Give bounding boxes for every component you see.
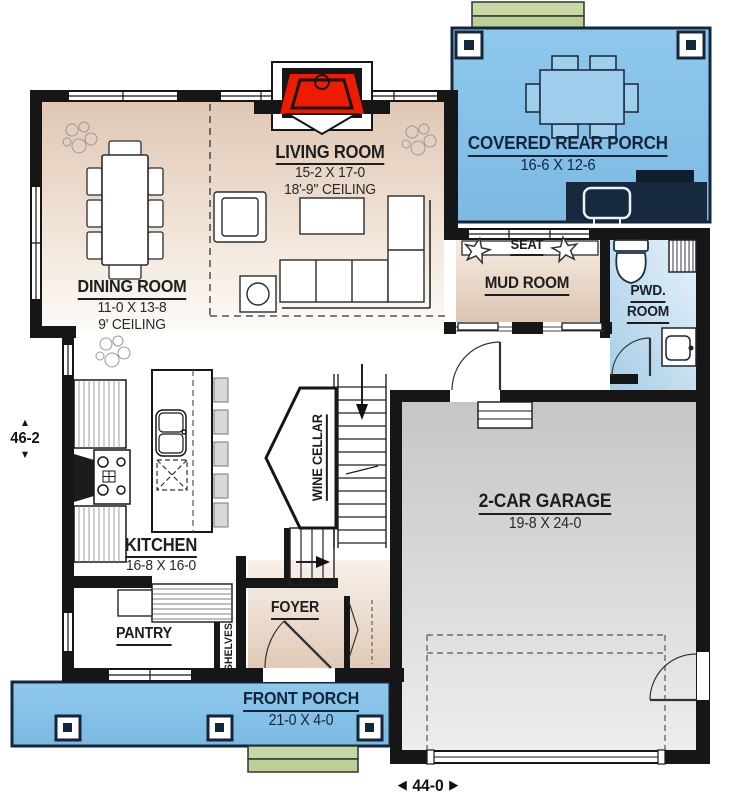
coffee-table-icon bbox=[300, 198, 364, 234]
width-dimension-value: 44-0 bbox=[412, 776, 443, 795]
pantry-label: PANTRY bbox=[99, 625, 189, 646]
dining-room-label: DINING ROOM 11-0 X 13-8 9' CEILING bbox=[58, 277, 205, 334]
rear-steps bbox=[472, 2, 584, 16]
garage-door-icon bbox=[427, 750, 665, 764]
armchair-icon bbox=[214, 192, 266, 242]
rear-porch-name: COVERED REAR PORCH bbox=[468, 133, 668, 157]
front-door-opening bbox=[263, 668, 335, 682]
counter bbox=[74, 380, 126, 448]
garage-label: 2-CAR GARAGE 19-8 X 24-0 bbox=[470, 491, 621, 533]
foyer-label: FOYER bbox=[255, 599, 336, 620]
stairs-down-arrow bbox=[356, 404, 368, 420]
dining-room-dims: 11-0 X 13-8 bbox=[58, 300, 205, 317]
linen-shelves bbox=[669, 240, 696, 272]
rear-porch bbox=[452, 2, 710, 224]
floor-plan: LIVING ROOM 15-2 X 17-0 18'-9'' CEILING … bbox=[0, 0, 738, 800]
depth-dimension-value: 46-2 bbox=[4, 430, 46, 448]
arrow-left-icon: ◀ bbox=[398, 778, 407, 793]
shelves-label: SHELVES bbox=[219, 615, 237, 680]
kitchen-label: KITCHEN 16-8 X 16-0 bbox=[105, 535, 217, 575]
dining-room-name: DINING ROOM bbox=[78, 277, 187, 300]
mud-room-label: MUD ROOM bbox=[479, 274, 575, 296]
living-room-label: LIVING ROOM 15-2 X 17-0 18'-9'' CEILING bbox=[247, 142, 413, 199]
counter bbox=[118, 590, 152, 616]
rear-porch-dims: 16-6 X 12-6 bbox=[468, 157, 648, 175]
arrow-right-icon: ▶ bbox=[449, 778, 458, 793]
pantry-fixtures bbox=[118, 584, 232, 622]
garage-side-door-opening bbox=[697, 652, 709, 700]
kitchen-fixtures bbox=[74, 370, 228, 562]
pwd-room-label: PWD. ROOM bbox=[615, 282, 681, 324]
seat-label: SEAT bbox=[494, 236, 560, 256]
living-room-ceiling: 18'-9'' CEILING bbox=[247, 182, 413, 199]
range-hood-icon bbox=[74, 454, 94, 502]
storage-shelf bbox=[478, 402, 532, 428]
front-porch-label: FRONT PORCH 21-0 X 4-0 bbox=[228, 689, 373, 729]
kitchen-dims: 16-8 X 16-0 bbox=[105, 558, 217, 575]
depth-dimension: ▲ 46-2 ▼ bbox=[4, 416, 46, 463]
stool-icon bbox=[214, 378, 228, 527]
wine-cellar-label: WINE CELLAR bbox=[309, 389, 328, 527]
garage-floor bbox=[402, 402, 696, 750]
range-icon bbox=[94, 450, 130, 504]
front-steps bbox=[248, 746, 358, 759]
front-porch-dims: 21-0 X 4-0 bbox=[228, 712, 373, 730]
arrow-up-icon: ▲ bbox=[4, 416, 46, 430]
fireplace-icon bbox=[254, 62, 390, 134]
front-steps bbox=[248, 759, 358, 772]
floorplan-graphics bbox=[0, 0, 738, 800]
rear-porch-label: COVERED REAR PORCH 16-6 X 12-6 bbox=[468, 133, 648, 175]
sink-icon bbox=[156, 410, 186, 456]
living-room-name: LIVING ROOM bbox=[275, 142, 384, 165]
kitchen-island bbox=[152, 370, 212, 532]
dining-room-ceiling: 9' CEILING bbox=[58, 317, 205, 334]
sink-icon bbox=[662, 328, 696, 366]
arrow-down-icon: ▼ bbox=[4, 448, 46, 462]
living-room-dims: 15-2 X 17-0 bbox=[247, 165, 413, 182]
garage-dims: 19-8 X 24-0 bbox=[470, 515, 621, 533]
width-dimension: ◀44-0▶ bbox=[373, 776, 483, 795]
side-table-icon bbox=[240, 276, 276, 312]
